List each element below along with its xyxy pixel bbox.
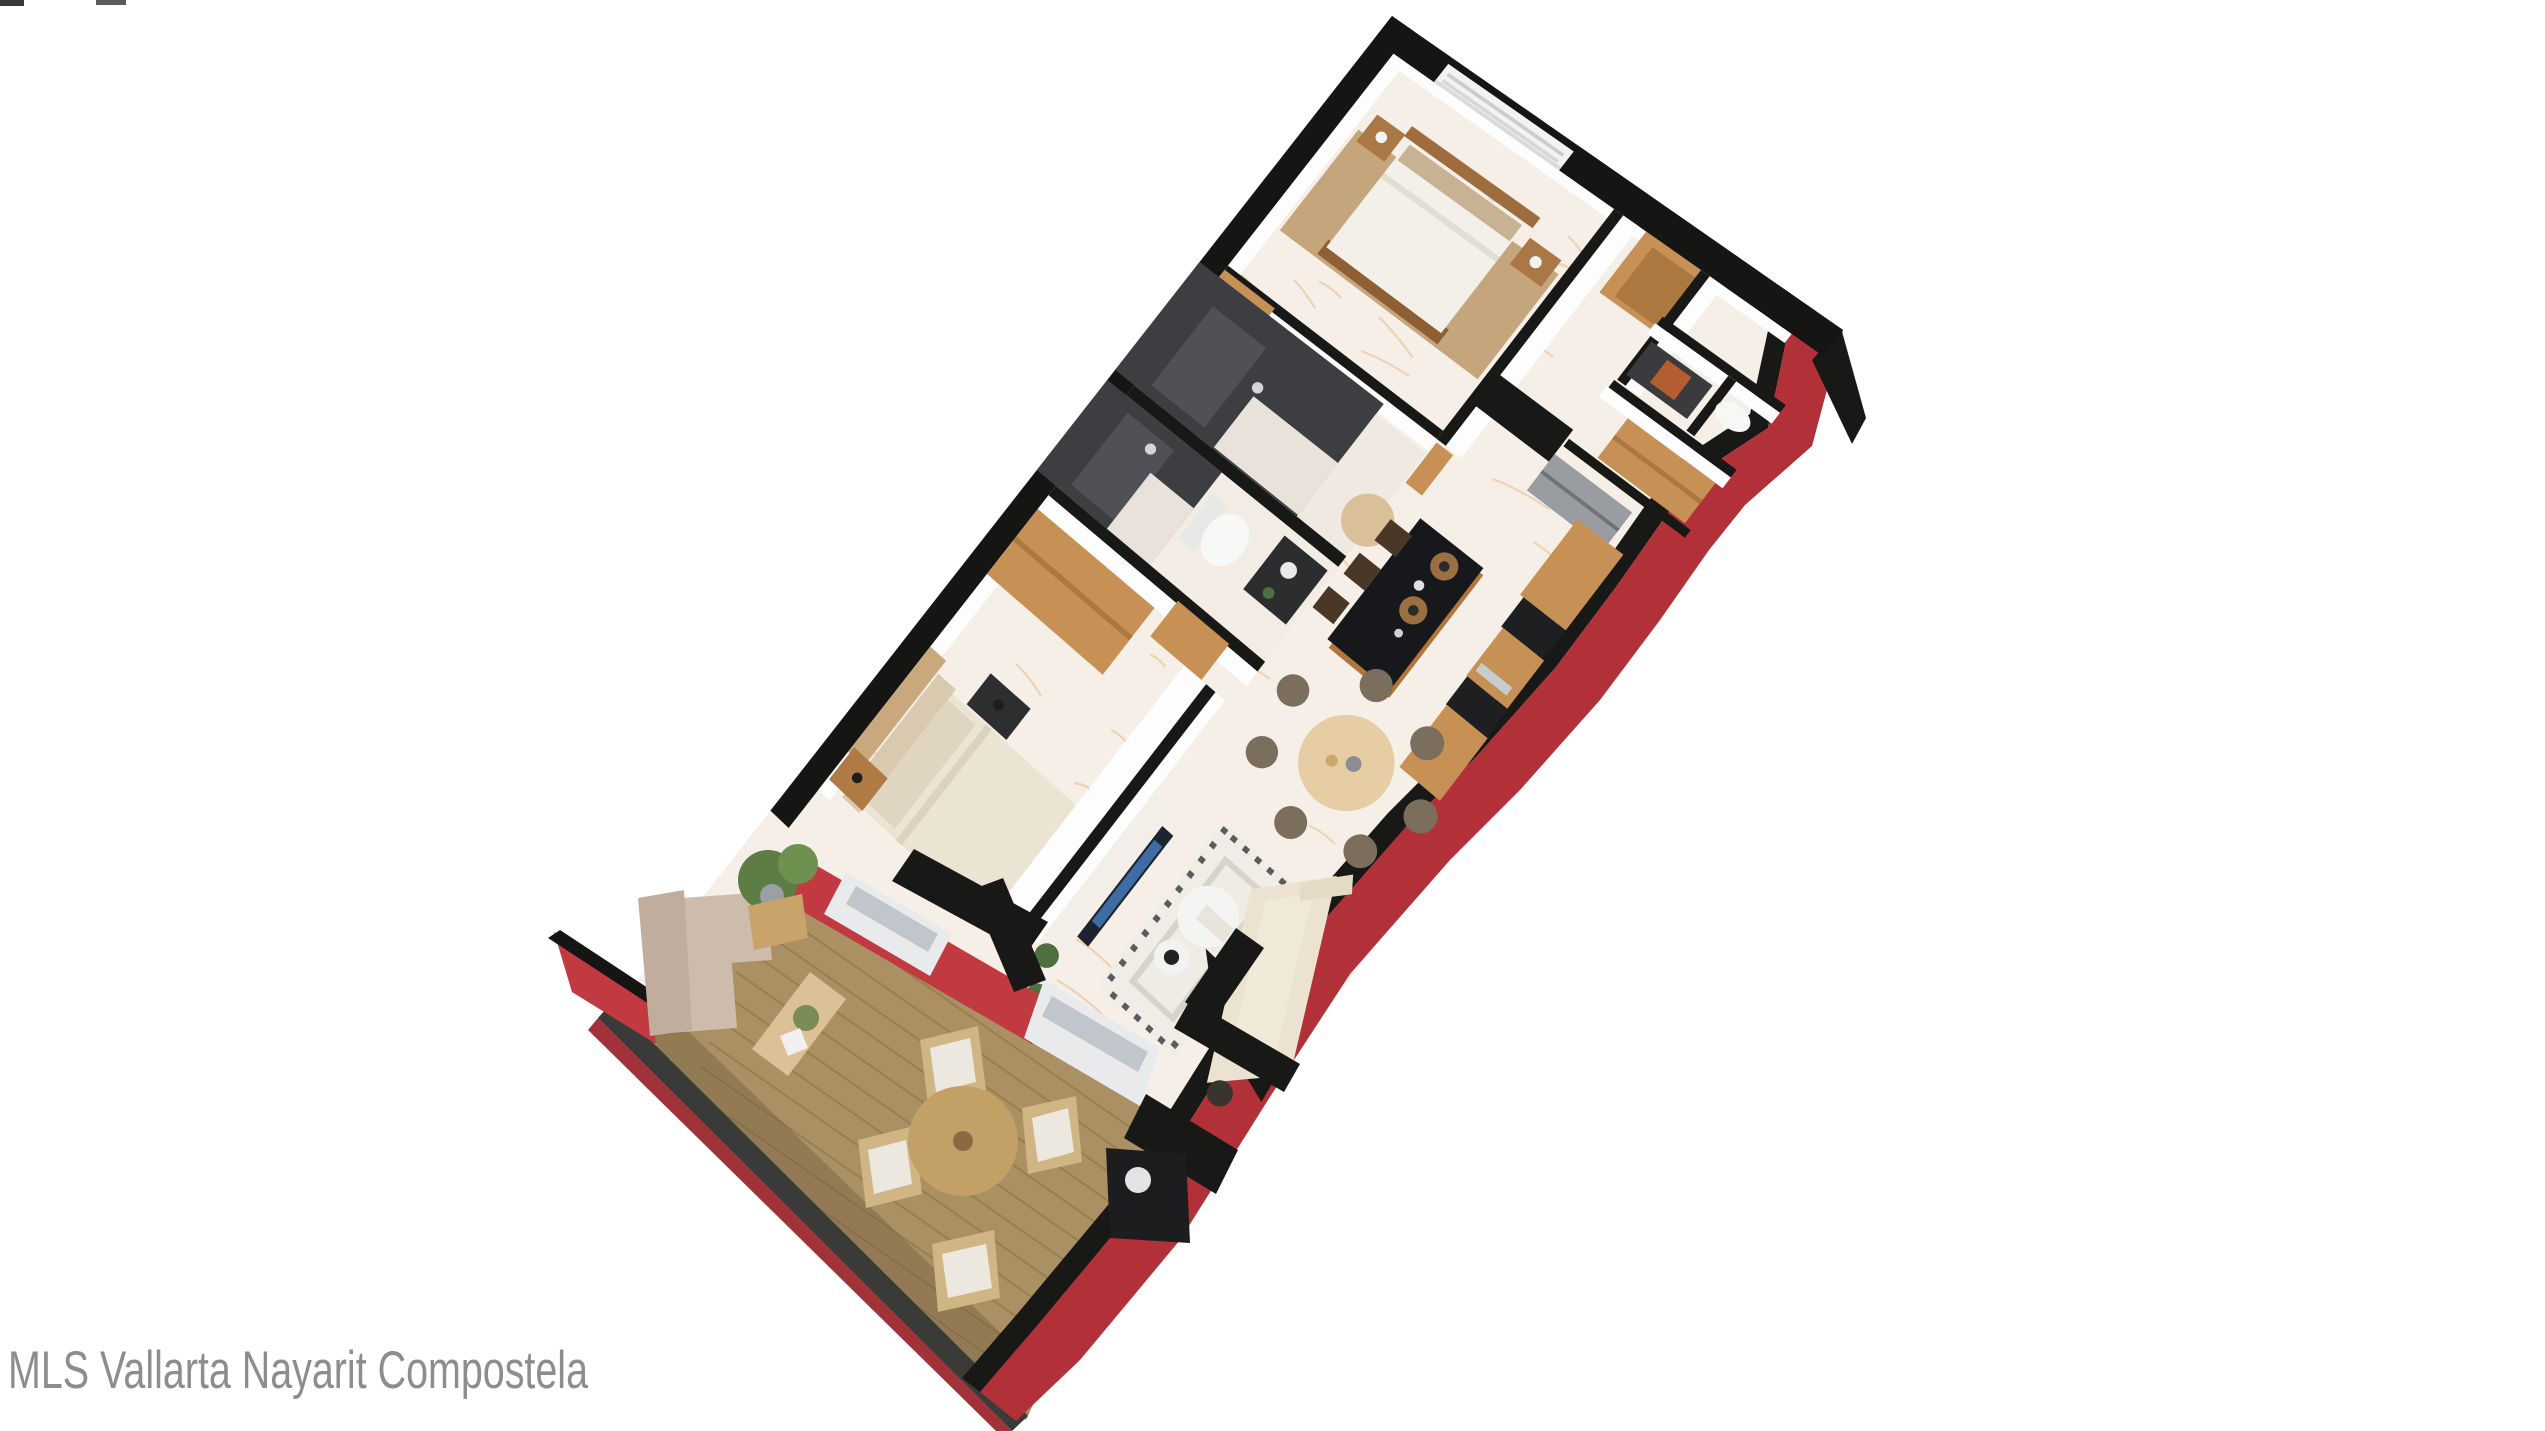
svg-text:MLS Vallarta Nayarit Compostel: MLS Vallarta Nayarit Compostela xyxy=(8,1341,588,1400)
